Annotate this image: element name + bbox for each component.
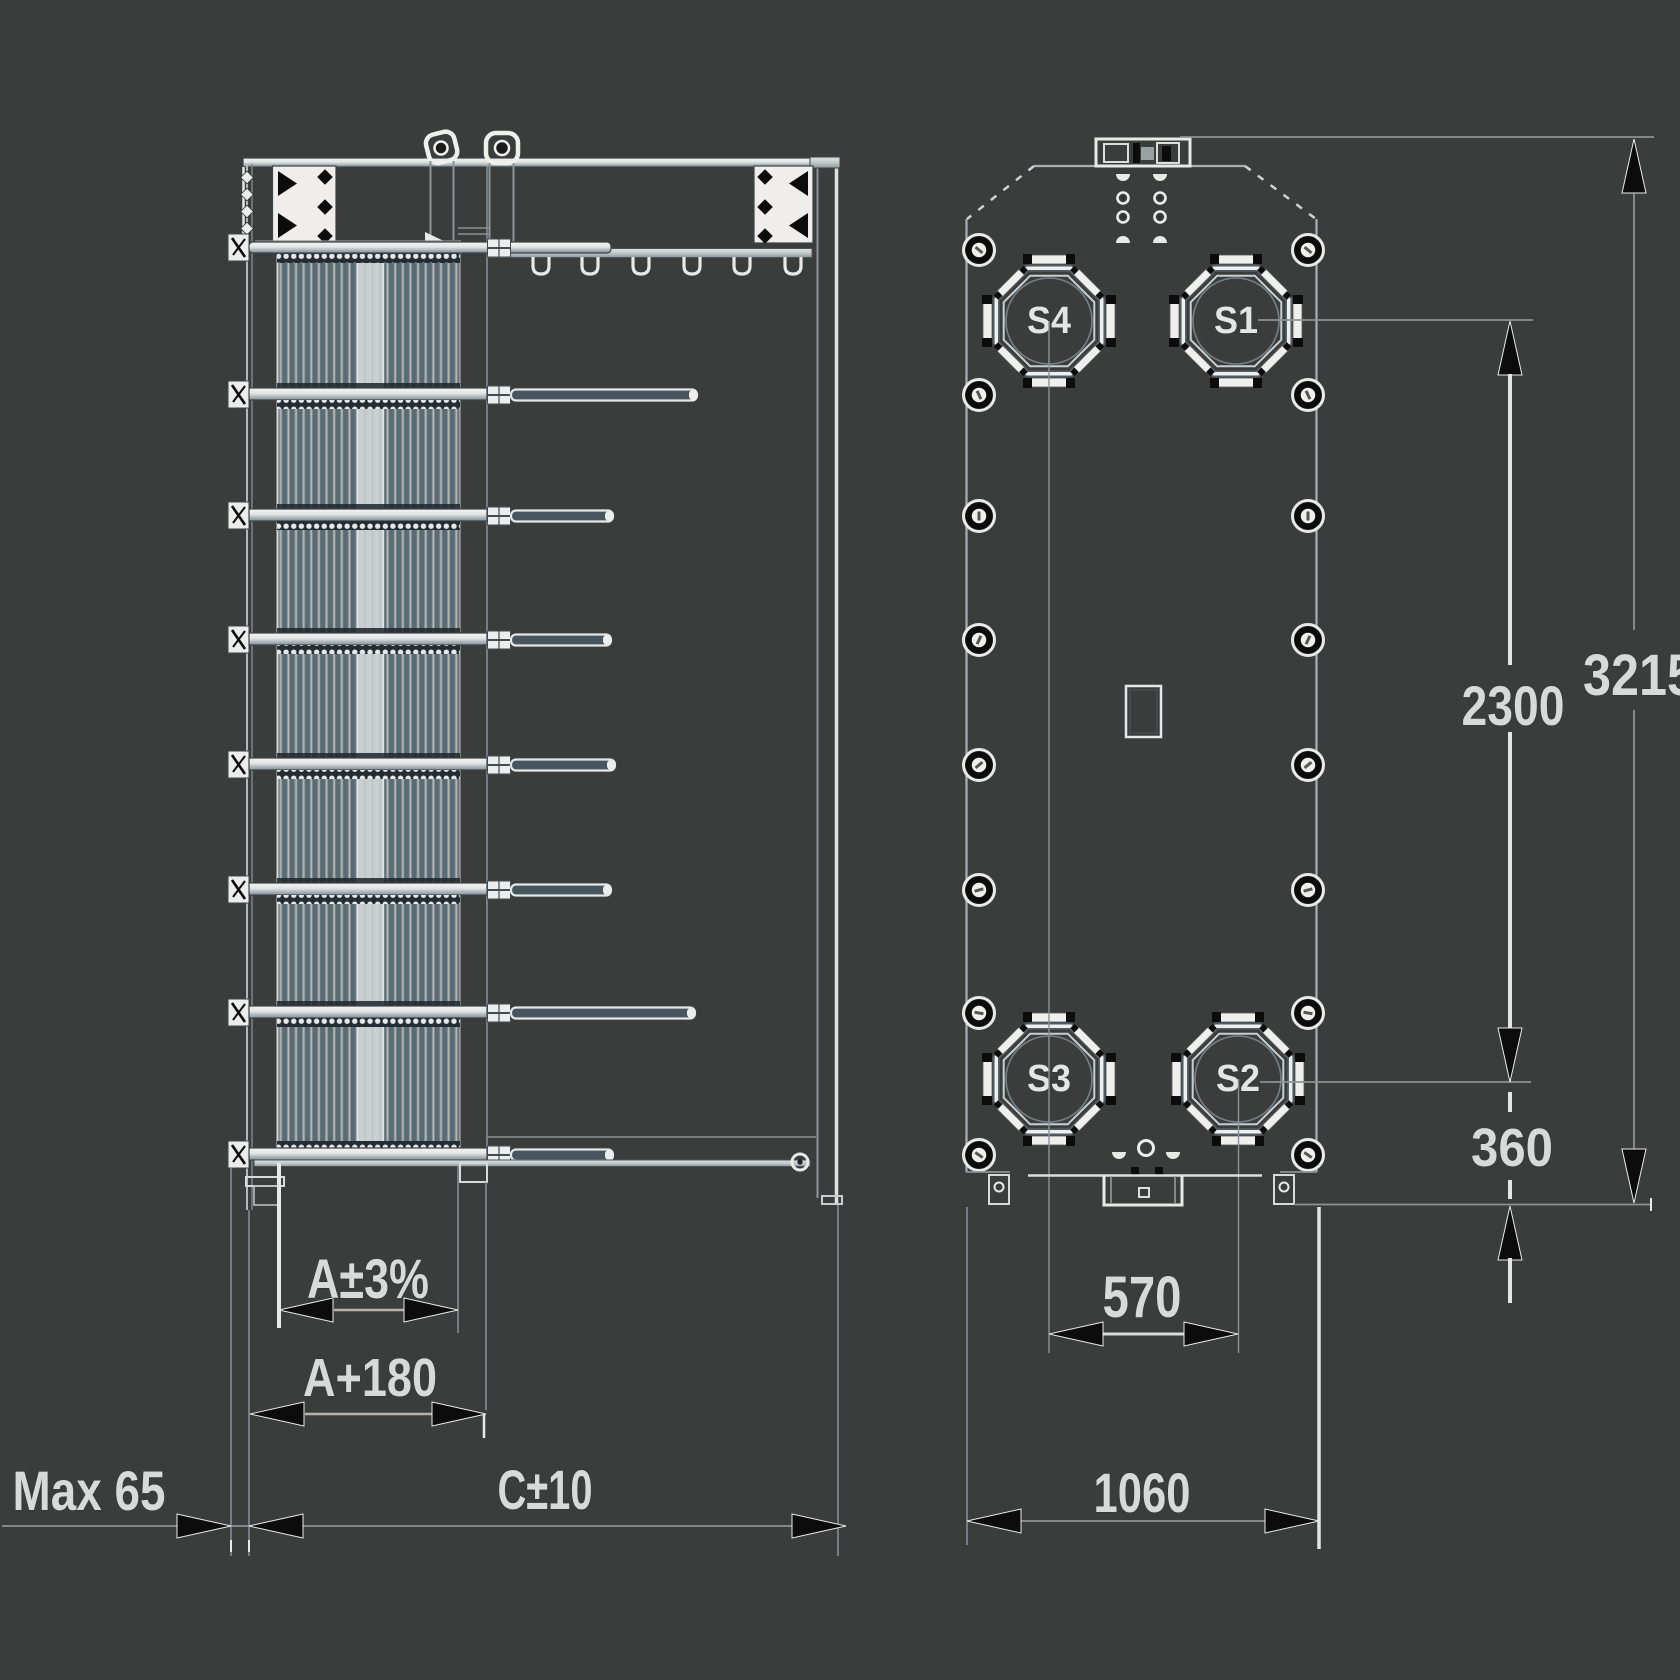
svg-text:A+180: A+180 [303, 1348, 437, 1408]
svg-text:A±3%: A±3% [307, 1247, 429, 1310]
svg-text:Max 65: Max 65 [13, 1459, 166, 1522]
svg-text:2300: 2300 [1462, 674, 1565, 737]
svg-text:1060: 1060 [1094, 1461, 1191, 1524]
svg-text:S1: S1 [1214, 300, 1258, 342]
svg-text:360: 360 [1471, 1118, 1553, 1178]
svg-text:570: 570 [1103, 1265, 1182, 1330]
svg-text:3215: 3215 [1583, 643, 1680, 708]
svg-text:C±10: C±10 [498, 1458, 593, 1521]
